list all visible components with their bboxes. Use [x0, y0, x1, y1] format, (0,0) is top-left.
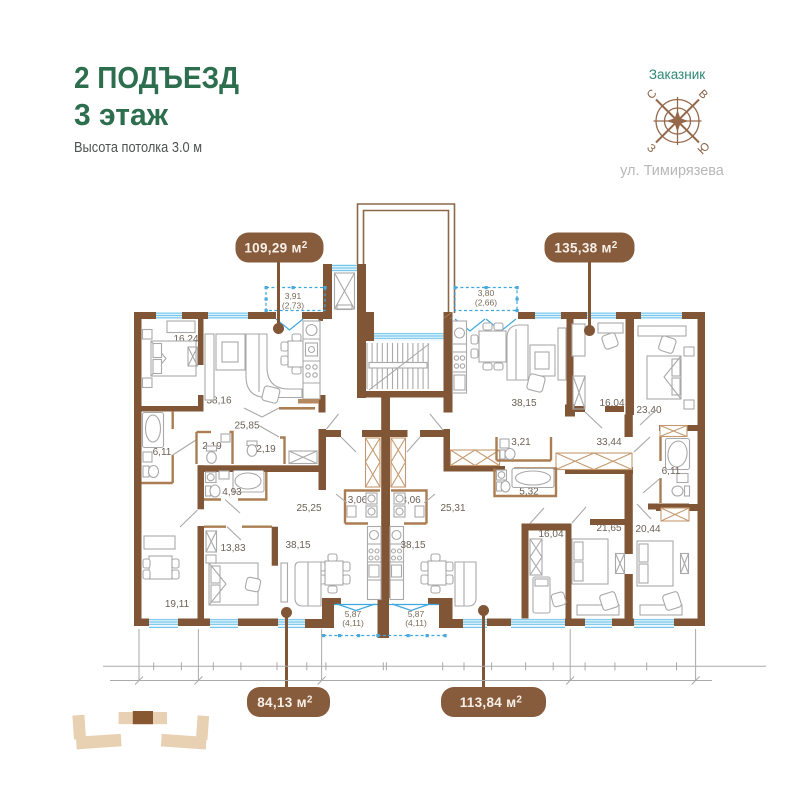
- svg-text:(4,11): (4,11): [405, 618, 427, 628]
- svg-text:25,31: 25,31: [440, 503, 465, 514]
- svg-text:38,15: 38,15: [285, 540, 310, 551]
- svg-text:113,84 м2: 113,84 м2: [460, 695, 523, 711]
- svg-text:16,04: 16,04: [538, 529, 563, 540]
- svg-text:13,83: 13,83: [220, 543, 245, 554]
- svg-text:38,15: 38,15: [511, 398, 536, 409]
- svg-text:38,15: 38,15: [400, 540, 425, 551]
- svg-text:6,11: 6,11: [662, 466, 681, 477]
- svg-text:19,11: 19,11: [165, 599, 190, 610]
- svg-text:3,91: 3,91: [285, 291, 302, 301]
- svg-text:(4,11): (4,11): [342, 618, 364, 628]
- svg-text:84,13 м2: 84,13 м2: [257, 695, 313, 711]
- svg-text:4,93: 4,93: [222, 487, 242, 498]
- svg-text:109,29 м2: 109,29 м2: [244, 240, 307, 256]
- svg-text:20,44: 20,44: [635, 524, 660, 535]
- svg-text:(2,73): (2,73): [282, 301, 304, 311]
- svg-text:3,21: 3,21: [511, 437, 531, 448]
- svg-text:3 этаж: 3 этаж: [74, 97, 169, 132]
- svg-text:135,38 м2: 135,38 м2: [554, 240, 617, 256]
- svg-text:Высота потолка 3.0 м: Высота потолка 3.0 м: [74, 139, 202, 156]
- svg-text:3,80: 3,80: [478, 288, 495, 298]
- svg-text:(2,66): (2,66): [475, 298, 497, 308]
- svg-text:Заказник: Заказник: [649, 67, 705, 82]
- svg-text:5,32: 5,32: [519, 487, 539, 498]
- svg-text:2 ПОДЪЕЗД: 2 ПОДЪЕЗД: [74, 60, 239, 95]
- svg-text:3,06: 3,06: [348, 495, 368, 506]
- svg-text:25,85: 25,85: [234, 421, 259, 432]
- svg-text:ул. Тимирязева: ул. Тимирязева: [620, 163, 725, 179]
- svg-text:21,65: 21,65: [596, 523, 621, 534]
- svg-text:23,40: 23,40: [636, 405, 661, 416]
- svg-text:2,19: 2,19: [256, 444, 276, 455]
- svg-text:33,44: 33,44: [596, 437, 621, 448]
- svg-text:16,04: 16,04: [599, 398, 624, 409]
- svg-text:6,11: 6,11: [153, 447, 172, 458]
- svg-text:25,25: 25,25: [296, 503, 321, 514]
